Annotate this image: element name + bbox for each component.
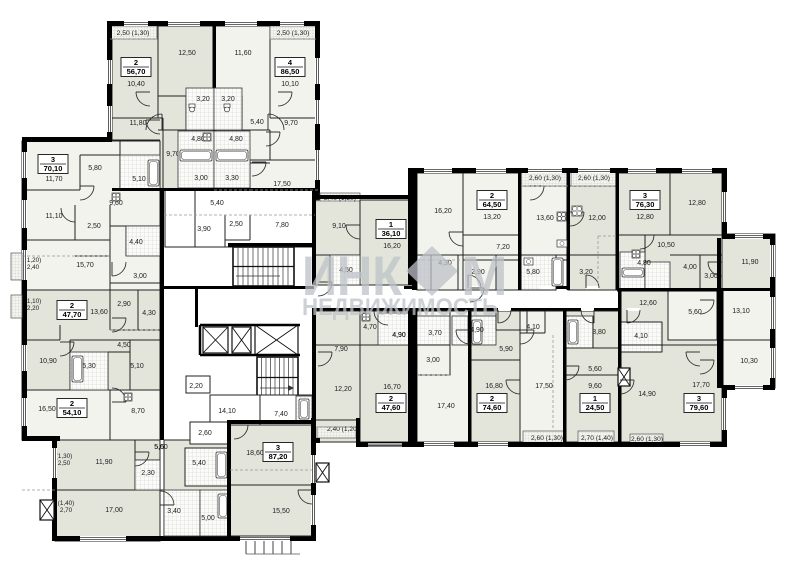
svg-text:2,50 (1,30): 2,50 (1,30) — [117, 30, 150, 37]
svg-text:2,20: 2,20 — [27, 305, 40, 312]
svg-text:10,40: 10,40 — [127, 81, 145, 88]
svg-text:11,90: 11,90 — [96, 459, 113, 466]
svg-text:9,10: 9,10 — [332, 223, 346, 230]
svg-text:1: 1 — [593, 394, 597, 403]
svg-text:47,70: 47,70 — [63, 310, 82, 319]
svg-text:11,80: 11,80 — [130, 120, 147, 127]
svg-text:10,50: 10,50 — [657, 242, 675, 249]
svg-text:76,30: 76,30 — [636, 200, 655, 209]
svg-text:14,90: 14,90 — [638, 391, 656, 398]
svg-text:2,60 (1,30): 2,60 (1,30) — [531, 435, 563, 442]
svg-text:11,60: 11,60 — [235, 50, 252, 57]
svg-text:3: 3 — [697, 394, 701, 403]
svg-text:5,30: 5,30 — [82, 363, 96, 370]
svg-text:3: 3 — [643, 191, 647, 200]
svg-text:17,40: 17,40 — [437, 403, 455, 410]
svg-text:64,50: 64,50 — [483, 200, 502, 209]
svg-text:2,60: 2,60 — [198, 430, 212, 437]
svg-text:2: 2 — [490, 394, 494, 403]
svg-text:3,90: 3,90 — [197, 226, 211, 233]
svg-text:3: 3 — [51, 155, 55, 164]
svg-text:5,10: 5,10 — [130, 363, 144, 370]
svg-text:7,40: 7,40 — [274, 411, 288, 418]
svg-text:14,10: 14,10 — [218, 408, 236, 415]
svg-text:13,20: 13,20 — [483, 214, 501, 221]
svg-text:2,50: 2,50 — [229, 221, 243, 228]
svg-text:17,70: 17,70 — [692, 382, 710, 389]
svg-text:11,90: 11,90 — [742, 259, 759, 266]
svg-text:1: 1 — [389, 220, 393, 229]
svg-text:2,60 (1,30): 2,60 (1,30) — [578, 175, 610, 182]
svg-text:13,10: 13,10 — [732, 308, 750, 315]
svg-text:12,60: 12,60 — [639, 300, 657, 307]
svg-text:11,10: 11,10 — [46, 213, 63, 220]
svg-text:2,60 (1,30): 2,60 (1,30) — [529, 175, 561, 182]
svg-text:16,70: 16,70 — [383, 384, 401, 391]
svg-text:86,50: 86,50 — [281, 67, 300, 76]
svg-text:17,50: 17,50 — [273, 181, 291, 188]
svg-text:2,40: 2,40 — [27, 264, 40, 271]
svg-text:5,60: 5,60 — [688, 309, 702, 316]
svg-text:4,80: 4,80 — [229, 136, 243, 143]
svg-text:4,40: 4,40 — [129, 239, 143, 246]
svg-text:16,80: 16,80 — [485, 383, 503, 390]
svg-text:5,40: 5,40 — [192, 460, 206, 467]
svg-text:18,60: 18,60 — [246, 450, 264, 457]
svg-text:4,90: 4,90 — [470, 327, 484, 334]
svg-text:4,80: 4,80 — [637, 260, 651, 267]
svg-text:16,50: 16,50 — [38, 406, 56, 413]
svg-text:5,40: 5,40 — [250, 119, 264, 126]
svg-text:5,60: 5,60 — [588, 366, 602, 373]
svg-text:8,70: 8,70 — [131, 408, 145, 415]
svg-text:12,20: 12,20 — [334, 386, 352, 393]
svg-text:(1,20): (1,20) — [25, 257, 41, 264]
svg-text:3,40: 3,40 — [167, 508, 181, 515]
svg-text:10,30: 10,30 — [740, 358, 758, 365]
svg-text:(1,10): (1,10) — [25, 298, 41, 305]
svg-text:3,00: 3,00 — [426, 357, 440, 364]
svg-text:2: 2 — [389, 394, 393, 403]
svg-text:10,10: 10,10 — [281, 81, 299, 88]
svg-text:15,70: 15,70 — [76, 262, 94, 269]
svg-text:2,50: 2,50 — [58, 460, 71, 467]
svg-text:3,70: 3,70 — [428, 330, 442, 337]
svg-text:7,80: 7,80 — [275, 222, 289, 229]
svg-text:12,00: 12,00 — [588, 215, 606, 222]
svg-text:3,00: 3,00 — [194, 175, 208, 182]
svg-text:3: 3 — [276, 443, 280, 452]
svg-text:13,60: 13,60 — [90, 309, 108, 316]
svg-text:24,50: 24,50 — [586, 403, 605, 412]
svg-text:2: 2 — [70, 399, 74, 408]
svg-text:3,30: 3,30 — [225, 175, 239, 182]
svg-text:16,20: 16,20 — [434, 208, 452, 215]
svg-text:4,30: 4,30 — [142, 310, 156, 317]
svg-text:НЕДВИЖИМОСТЬ: НЕДВИЖИМОСТЬ — [302, 294, 498, 321]
svg-text:(1,30): (1,30) — [56, 453, 72, 460]
svg-text:79,60: 79,60 — [690, 403, 709, 412]
svg-text:5,90: 5,90 — [499, 346, 513, 353]
svg-text:4,00: 4,00 — [683, 264, 697, 271]
svg-text:5,80: 5,80 — [526, 269, 540, 276]
svg-text:12,50: 12,50 — [178, 50, 196, 57]
svg-text:36,10: 36,10 — [382, 229, 401, 238]
svg-text:2: 2 — [490, 191, 494, 200]
svg-text:2,60 (1,30): 2,60 (1,30) — [631, 436, 663, 443]
svg-text:4,90: 4,90 — [392, 332, 406, 339]
svg-text:4,50: 4,50 — [117, 342, 131, 349]
svg-text:5,60: 5,60 — [154, 444, 168, 451]
svg-text:3,80: 3,80 — [592, 329, 606, 336]
svg-text:17,00: 17,00 — [105, 507, 123, 514]
svg-text:5,80: 5,80 — [88, 165, 102, 172]
svg-text:5,10: 5,10 — [132, 176, 146, 183]
svg-text:11,70: 11,70 — [46, 176, 63, 183]
svg-text:2,70 (1,40): 2,70 (1,40) — [581, 435, 613, 442]
svg-text:4,70: 4,70 — [363, 324, 377, 331]
svg-text:2: 2 — [134, 58, 138, 67]
svg-text:70,10: 70,10 — [44, 164, 63, 173]
svg-text:54,10: 54,10 — [63, 408, 82, 417]
svg-text:2,50 (1,30): 2,50 (1,30) — [277, 30, 310, 37]
svg-text:2,50: 2,50 — [87, 223, 101, 230]
svg-text:47,60: 47,60 — [382, 403, 401, 412]
svg-text:12,80: 12,80 — [636, 214, 654, 221]
svg-text:2,90: 2,90 — [117, 301, 131, 308]
svg-text:12,80: 12,80 — [688, 200, 706, 207]
svg-text:10,90: 10,90 — [39, 358, 57, 365]
svg-text:5,40: 5,40 — [210, 200, 224, 207]
svg-text:13,60: 13,60 — [536, 215, 554, 222]
svg-text:87,20: 87,20 — [269, 452, 288, 461]
svg-text:3,20: 3,20 — [196, 96, 210, 103]
svg-text:7,90: 7,90 — [334, 346, 348, 353]
svg-text:9,70: 9,70 — [284, 120, 298, 127]
svg-text:(1,40): (1,40) — [58, 500, 74, 507]
svg-text:2,70: 2,70 — [60, 507, 73, 514]
svg-text:17,50: 17,50 — [535, 383, 553, 390]
svg-text:3,20: 3,20 — [221, 96, 235, 103]
svg-text:74,60: 74,60 — [483, 403, 502, 412]
svg-text:2,20: 2,20 — [189, 383, 203, 390]
svg-text:5,00: 5,00 — [201, 515, 215, 522]
svg-text:4,10: 4,10 — [634, 333, 648, 340]
svg-text:9,60: 9,60 — [588, 383, 602, 390]
svg-text:3,00: 3,00 — [133, 273, 147, 280]
svg-text:3,00: 3,00 — [704, 273, 718, 280]
svg-text:2: 2 — [70, 301, 74, 310]
svg-text:15,50: 15,50 — [272, 508, 290, 515]
svg-text:2,30: 2,30 — [141, 470, 155, 477]
svg-text:56,70: 56,70 — [127, 67, 146, 76]
